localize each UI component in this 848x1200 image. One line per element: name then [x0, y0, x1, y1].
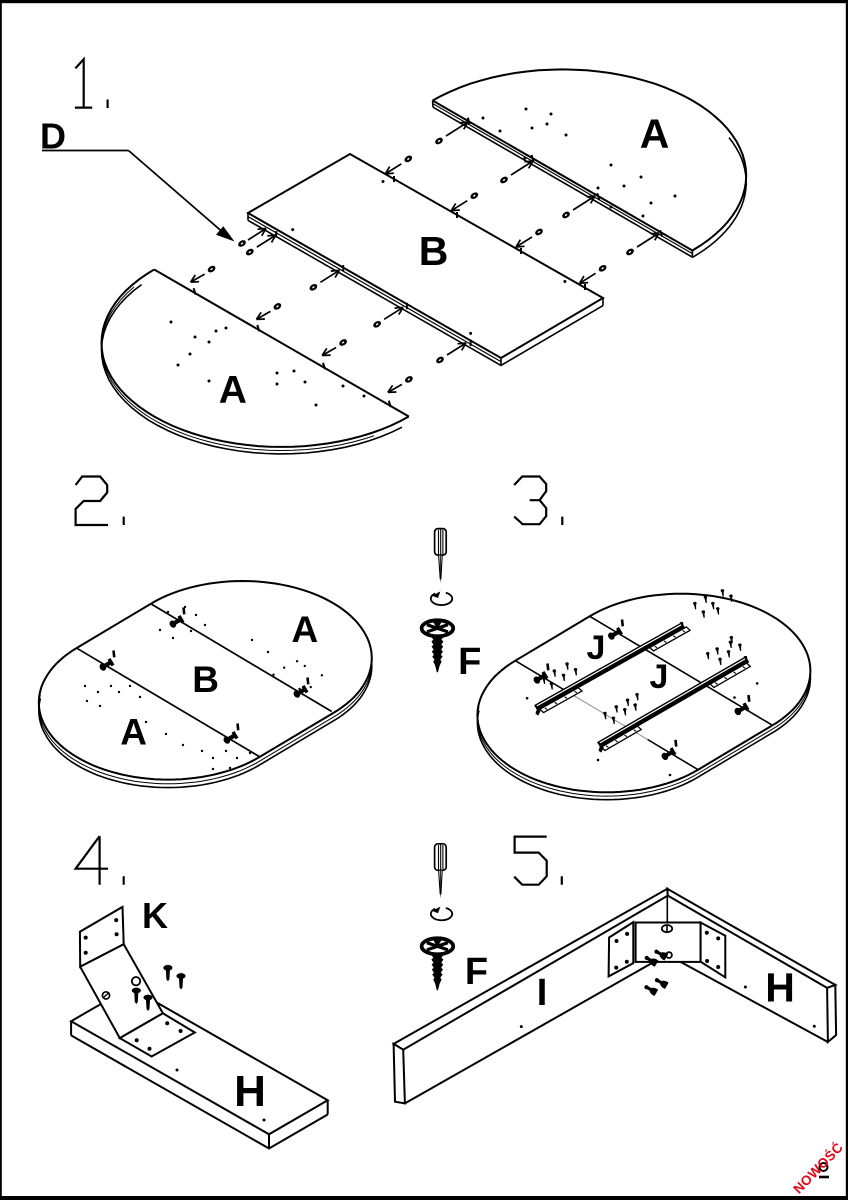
svg-text:I: I	[537, 972, 548, 1014]
svg-text:A: A	[640, 111, 670, 157]
svg-text:K: K	[142, 895, 168, 936]
svg-text:A: A	[120, 712, 147, 753]
svg-text:A: A	[292, 609, 319, 650]
svg-text:F: F	[458, 641, 481, 683]
svg-text:H: H	[234, 1067, 266, 1116]
svg-text:J: J	[650, 658, 669, 696]
svg-text:A: A	[219, 369, 247, 412]
svg-text:B: B	[192, 659, 219, 700]
svg-text:F: F	[465, 951, 488, 993]
svg-text:J: J	[587, 629, 606, 667]
svg-text:B: B	[419, 228, 449, 274]
svg-text:H: H	[765, 965, 795, 1011]
